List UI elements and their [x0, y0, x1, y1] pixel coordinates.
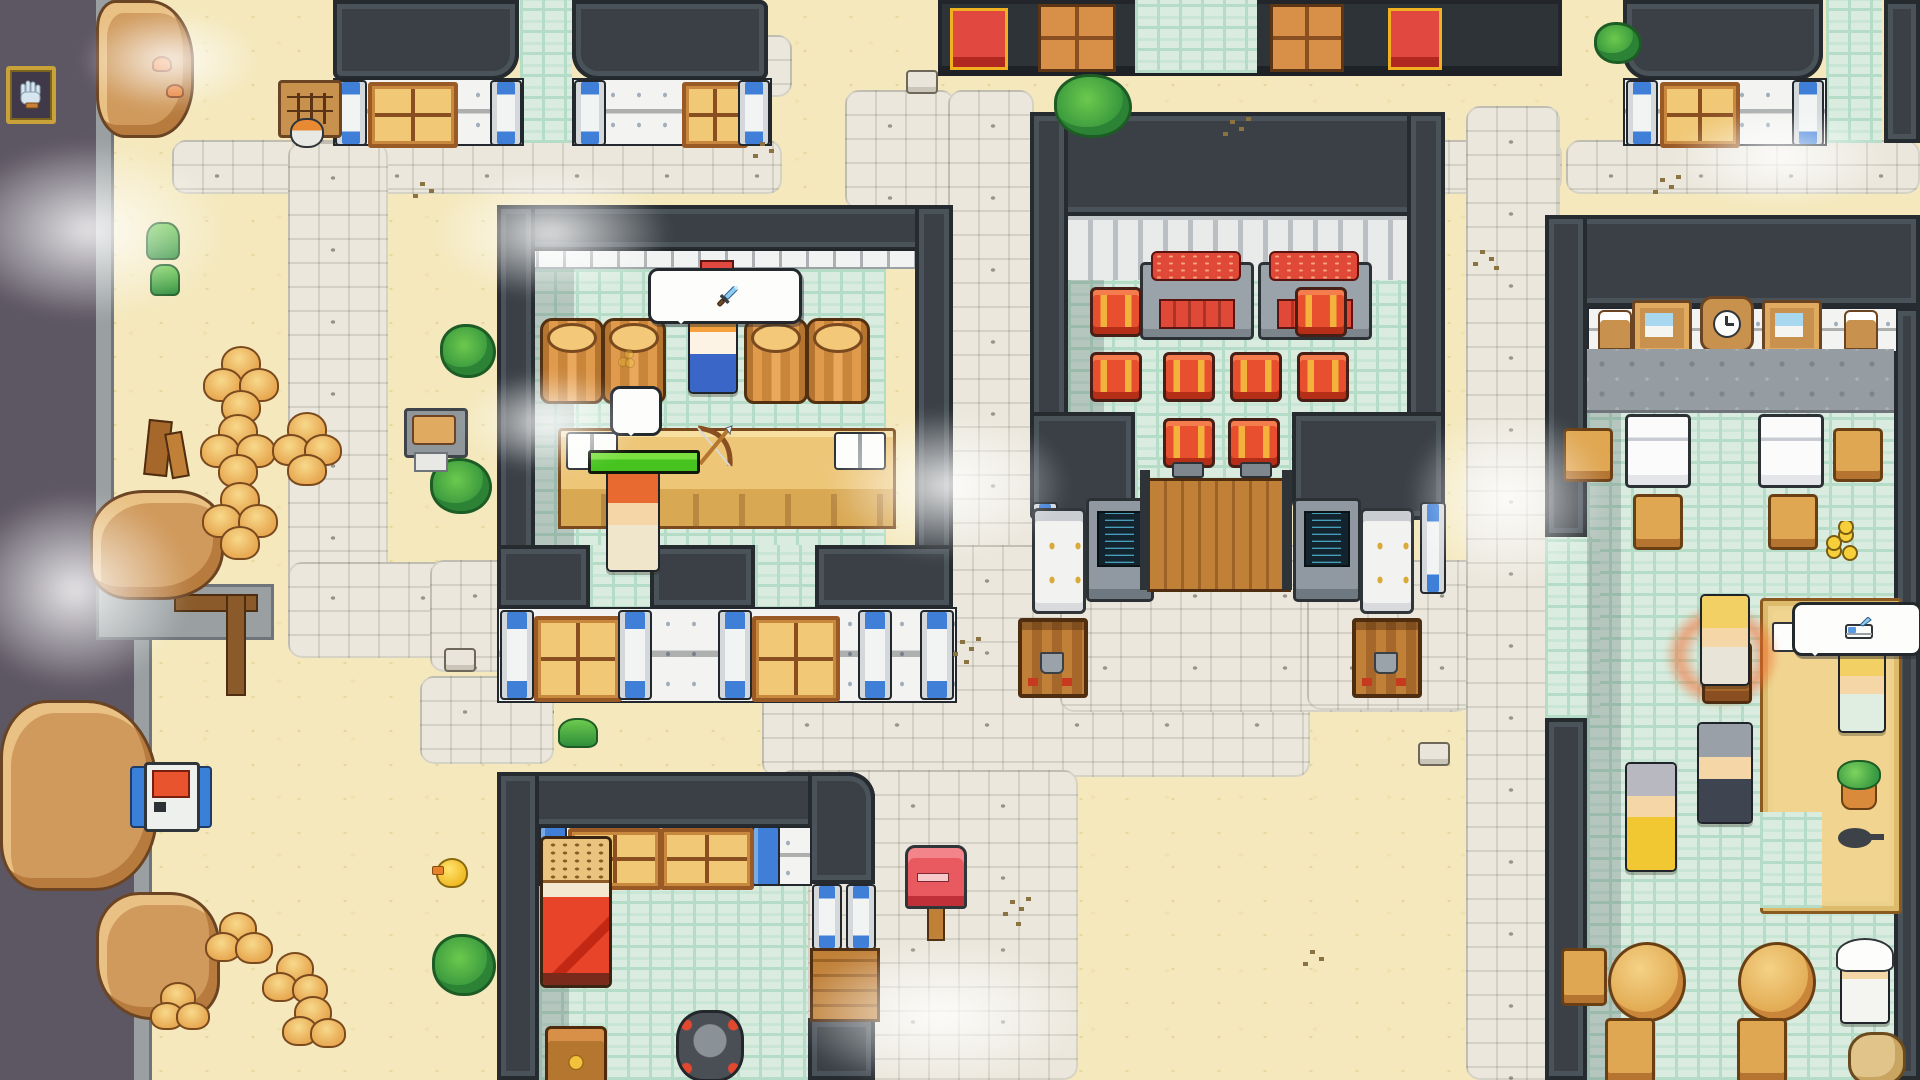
yellow-dress-npc[interactable] [1625, 762, 1677, 872]
inn-bed[interactable] [1758, 414, 1824, 488]
golden-duck[interactable] [432, 852, 468, 888]
shop-sign-tail [672, 315, 690, 333]
inn-wall-left [1545, 718, 1587, 1080]
inn-wall-top [1545, 215, 1920, 307]
bedroom-wall-left [497, 772, 539, 1080]
building-wall [572, 0, 768, 80]
fog-patch [1408, 408, 1608, 588]
vending-machine[interactable] [1293, 498, 1361, 602]
red-chest[interactable] [1295, 287, 1347, 337]
potted-plant [1835, 760, 1879, 806]
pet-creature[interactable] [1848, 1032, 1906, 1080]
wall-lamp [1598, 310, 1632, 350]
pillar [738, 80, 770, 146]
red-chest[interactable] [1297, 352, 1349, 402]
coin-stack-icon [1826, 521, 1860, 563]
dirt-speckle [1480, 250, 1485, 254]
sign-board[interactable] [404, 408, 468, 472]
inn-sign-tail [1806, 647, 1824, 665]
pillar [1626, 80, 1658, 146]
pillar [858, 610, 892, 700]
fog-patch [828, 410, 1068, 560]
workbench [1038, 4, 1116, 72]
fog-patch [790, 940, 1090, 1080]
innkeeper-npc[interactable] [1700, 594, 1750, 686]
minecart-crate[interactable] [1352, 618, 1422, 698]
forge-machine[interactable] [1140, 262, 1254, 340]
inn-floor [1760, 812, 1822, 908]
shop-wall-bottom [650, 545, 755, 609]
gray-haired-npc[interactable] [1697, 722, 1753, 824]
cobble-tile [906, 70, 938, 94]
building-wall [1623, 0, 1823, 80]
game-viewport [0, 0, 1920, 1080]
wall-lamp [1844, 310, 1878, 350]
red-chest[interactable] [1163, 352, 1215, 402]
cauldron[interactable] [676, 1010, 744, 1080]
red-machine-panel [1388, 8, 1442, 70]
pillar [718, 610, 752, 700]
pot-cluster [272, 412, 338, 480]
dirt-speckle [1010, 900, 1015, 904]
pot-cluster [203, 346, 275, 418]
workbench [1270, 4, 1344, 72]
pot-cluster [200, 414, 272, 482]
dirt-speckle [960, 640, 965, 644]
bush-tree [1594, 22, 1642, 64]
round-table [1738, 942, 1816, 1022]
hand-cursor-icon [18, 80, 44, 110]
cobble-tile [1418, 742, 1450, 766]
dirt-speckle [760, 142, 765, 146]
window-dresser [660, 828, 754, 890]
sprout-plant [558, 718, 598, 748]
blue-curtain [752, 826, 780, 886]
coin-stack-icon [618, 346, 636, 368]
wall-clock [1700, 296, 1754, 352]
bed-icon [1844, 617, 1874, 641]
cobble-path [288, 142, 388, 588]
fog-patch [80, 10, 260, 110]
red-chest[interactable] [1230, 352, 1282, 402]
white-machine[interactable] [1360, 508, 1414, 614]
sword-icon [714, 283, 740, 309]
pillar [490, 80, 522, 146]
mailbox[interactable] [905, 845, 963, 939]
window-dresser [534, 616, 622, 702]
blonde-npc[interactable] [1838, 645, 1886, 733]
anvil [1172, 462, 1204, 478]
dirt-speckle [1310, 950, 1315, 954]
forge-wall-left [1030, 112, 1068, 460]
dirt-speckle [420, 182, 425, 186]
window-dresser [752, 616, 840, 702]
bedroom-wall-right [808, 772, 875, 884]
window-dresser [368, 82, 458, 148]
fog-patch [0, 140, 230, 320]
pillar [920, 610, 954, 700]
dirt-speckle [1230, 120, 1235, 124]
wooden-double-door[interactable] [1147, 478, 1291, 592]
shop-wall-bottom [497, 545, 590, 609]
fog-patch [430, 168, 670, 298]
wooden-table [1768, 494, 1818, 550]
building-wall [333, 0, 519, 80]
doorway-floor [520, 0, 572, 143]
inn-bed[interactable] [1625, 414, 1691, 488]
picture-frame [1762, 300, 1822, 356]
pot-cluster [150, 982, 206, 1034]
player-character[interactable] [606, 466, 660, 572]
wooden-chair [1561, 948, 1607, 1006]
door-frame [1282, 470, 1292, 590]
fog-patch [1670, 108, 1890, 208]
dirt-speckle [1660, 178, 1665, 182]
pillar [574, 80, 606, 146]
wooden-chair [1737, 1018, 1787, 1080]
red-chest[interactable] [1163, 418, 1215, 468]
bush-tree [432, 934, 496, 996]
frying-pan [1838, 828, 1872, 848]
wooden-table [1633, 494, 1683, 550]
red-chest[interactable] [1090, 287, 1142, 337]
coin-counter [1826, 520, 1920, 564]
fog-patch [0, 490, 190, 690]
bush-tree [1054, 74, 1132, 138]
minecart-crate[interactable] [1018, 618, 1088, 698]
red-machine-panel [950, 8, 1008, 70]
shop-entrance-floor [755, 545, 815, 609]
picture-frame [1632, 300, 1692, 356]
pot-cluster [205, 912, 269, 974]
treasure-chest[interactable] [545, 1026, 607, 1080]
kiosk-machine[interactable] [130, 762, 212, 828]
cobble-tile [444, 648, 476, 672]
fog-patch [460, 372, 640, 472]
wooden-chair [1833, 428, 1883, 482]
bush-tree [440, 324, 496, 378]
coin-popup-ghost [618, 344, 688, 370]
barrel [806, 318, 870, 404]
wooden-chair [1605, 1018, 1655, 1080]
red-chest[interactable] [1090, 352, 1142, 402]
hand-tool-button[interactable] [6, 66, 56, 124]
door-frame [1140, 470, 1150, 590]
wooden-post [226, 594, 246, 696]
pillar [618, 610, 652, 700]
anvil [1240, 462, 1272, 478]
red-bed[interactable] [540, 836, 612, 988]
pillar [500, 610, 534, 700]
gnome-npc[interactable] [290, 118, 324, 148]
chef-hat [1836, 938, 1894, 972]
barrel [744, 318, 808, 404]
doorway-floor [1135, 0, 1257, 73]
pot-cluster [202, 482, 274, 552]
round-table [1608, 942, 1686, 1022]
inn-wallpaper [1587, 349, 1894, 413]
red-chest[interactable] [1228, 418, 1280, 468]
cobble-path [845, 90, 955, 210]
pot-cluster [282, 996, 342, 1054]
